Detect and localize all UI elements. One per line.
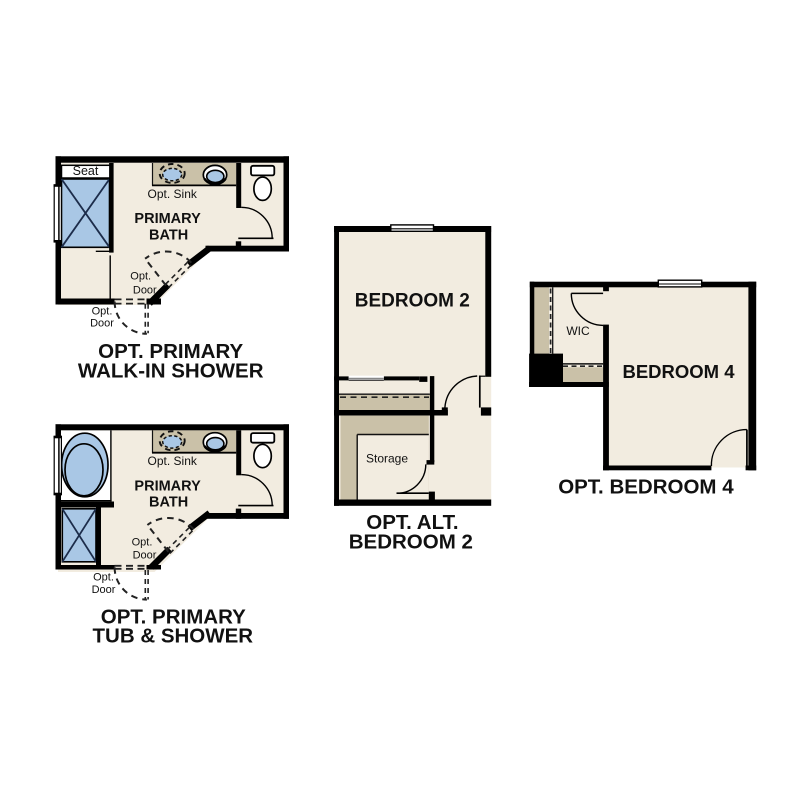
svg-text:Storage: Storage (366, 452, 408, 466)
svg-text:Door: Door (133, 285, 157, 297)
svg-text:Opt.: Opt. (130, 271, 151, 283)
svg-text:BATH: BATH (149, 495, 188, 511)
svg-text:Door: Door (133, 550, 157, 562)
svg-text:Seat: Seat (73, 164, 99, 178)
svg-text:Opt.: Opt. (92, 306, 113, 318)
svg-text:PRIMARY: PRIMARY (134, 211, 201, 227)
svg-text:BEDROOM 2: BEDROOM 2 (355, 290, 470, 311)
svg-text:Opt.: Opt. (132, 537, 153, 549)
svg-text:Opt.: Opt. (93, 571, 114, 583)
svg-text:TUB & SHOWER: TUB & SHOWER (93, 625, 254, 648)
svg-text:PRIMARY: PRIMARY (134, 478, 201, 494)
svg-text:Door: Door (90, 318, 114, 330)
svg-text:BEDROOM 2: BEDROOM 2 (349, 531, 473, 554)
svg-text:Opt. Sink: Opt. Sink (148, 187, 198, 201)
svg-text:BATH: BATH (149, 227, 188, 243)
svg-text:WIC: WIC (566, 324, 590, 338)
svg-text:WALK-IN SHOWER: WALK-IN SHOWER (78, 359, 264, 382)
svg-text:OPT. BEDROOM 4: OPT. BEDROOM 4 (558, 476, 734, 499)
svg-text:Opt. Sink: Opt. Sink (148, 454, 198, 468)
svg-text:BEDROOM 4: BEDROOM 4 (622, 361, 735, 382)
svg-text:Door: Door (92, 584, 116, 596)
